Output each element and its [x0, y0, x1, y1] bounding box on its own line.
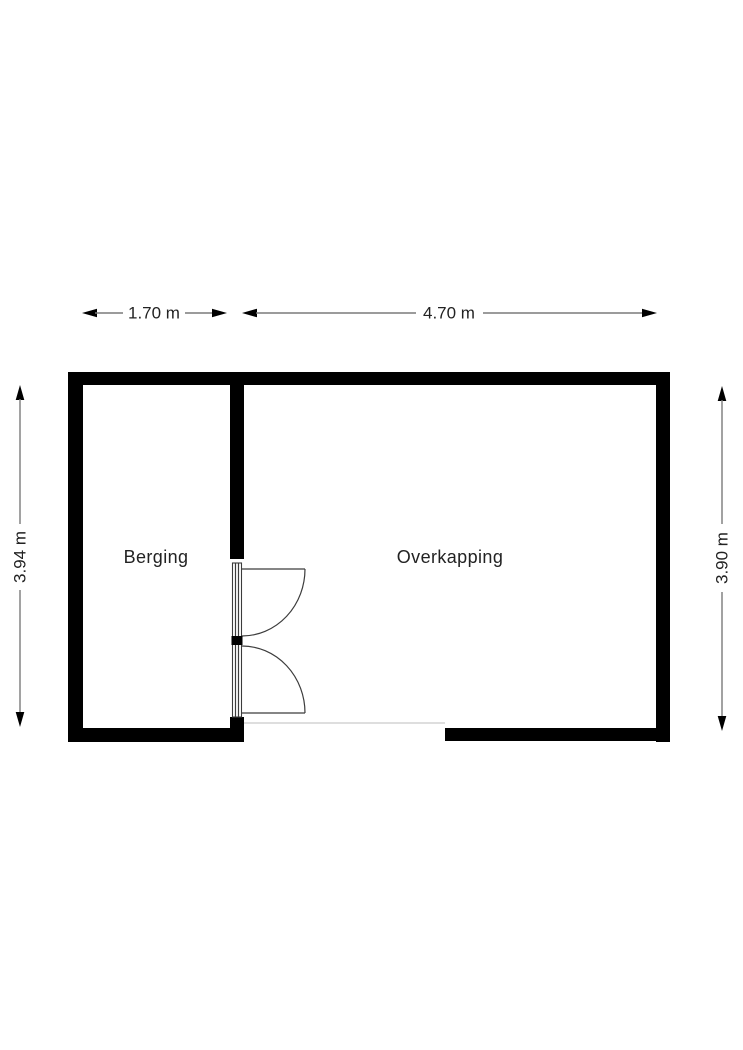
dimension-label-right: 3.90 m	[713, 532, 732, 584]
room-label-berging: Berging	[124, 547, 189, 567]
dimension-top-berging: 1.70 m	[82, 304, 227, 323]
room-label-overkapping: Overkapping	[397, 547, 503, 567]
dimension-label-top-berging: 1.70 m	[128, 304, 180, 323]
dimension-label-top-overkapping: 4.70 m	[423, 304, 475, 323]
arrowhead-left-icon	[82, 309, 97, 318]
arrowhead-up-icon	[16, 385, 25, 400]
arrowhead-right-icon	[642, 309, 657, 318]
arrowhead-down-icon	[718, 716, 727, 731]
wall-left	[68, 372, 83, 742]
dimension-left: 3.94 m	[11, 385, 30, 727]
floorplan-drawing: 1.70 m 4.70 m 3.94 m 3.90 m	[0, 0, 743, 1050]
wall-door-pier	[230, 717, 244, 742]
door-swing-arc-top	[242, 569, 305, 636]
dimension-right: 3.90 m	[713, 386, 732, 731]
door-meeting-block	[232, 636, 243, 645]
arrowhead-up-icon	[718, 386, 727, 401]
wall-right	[656, 372, 670, 742]
wall-top	[68, 372, 670, 385]
door-swing-arc-bottom	[242, 646, 305, 713]
arrowhead-left-icon	[242, 309, 257, 318]
wall-bottom-overkapping	[445, 728, 670, 741]
dimension-label-left: 3.94 m	[11, 531, 30, 583]
wall-bottom-berging	[68, 728, 243, 742]
arrowhead-right-icon	[212, 309, 227, 318]
arrowhead-down-icon	[16, 712, 25, 727]
dimension-top-overkapping: 4.70 m	[242, 304, 657, 323]
wall-interior	[230, 385, 244, 559]
double-door	[232, 563, 306, 717]
floorplan-canvas: 1.70 m 4.70 m 3.94 m 3.90 m	[0, 0, 743, 1050]
